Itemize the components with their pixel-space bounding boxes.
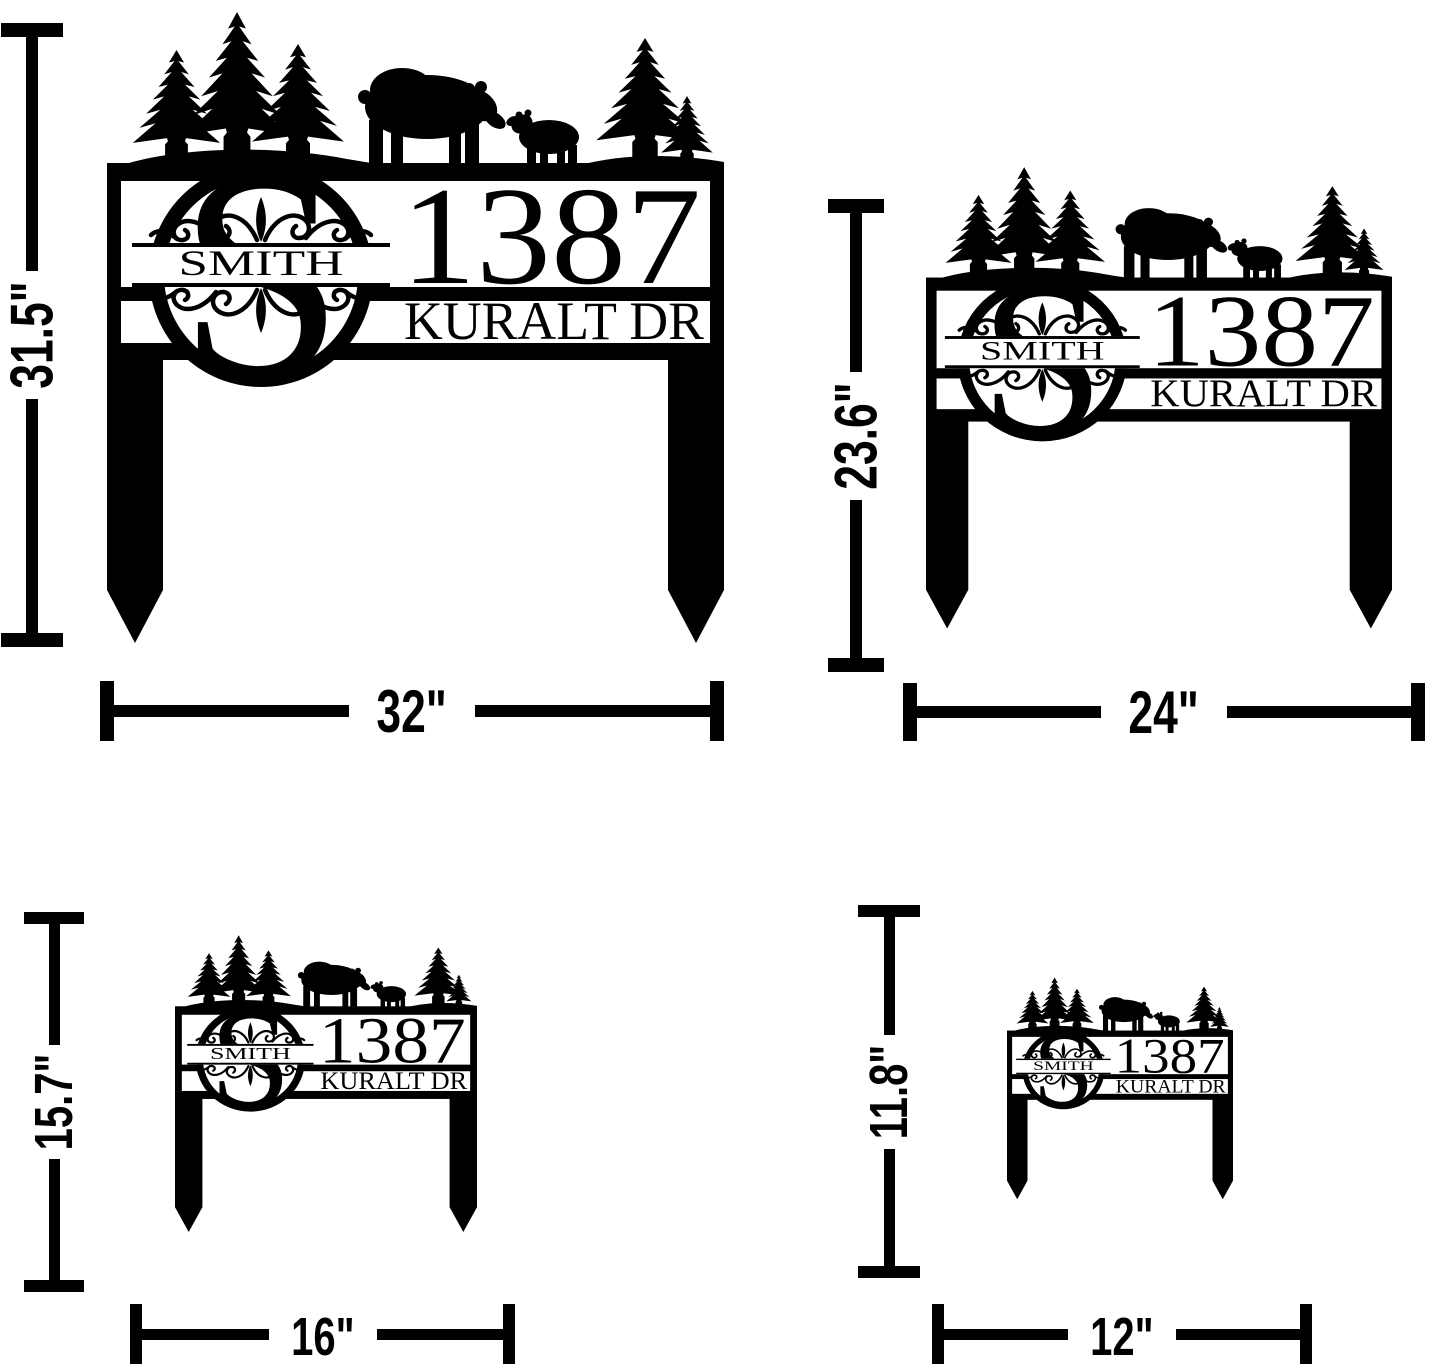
dimension-line bbox=[377, 1329, 504, 1340]
dimension-cap bbox=[1300, 1304, 1312, 1364]
width-dimension-xsmall: 12" bbox=[932, 1304, 1312, 1364]
width-label-small: 16" bbox=[269, 1300, 377, 1369]
sign-preview-12in bbox=[1007, 975, 1233, 1200]
dimension-line bbox=[917, 706, 1101, 718]
width-dimension-small: 16" bbox=[130, 1304, 515, 1364]
width-dimension-large: 32" bbox=[100, 681, 724, 741]
dimension-line bbox=[884, 917, 895, 1035]
dimension-cap bbox=[24, 912, 84, 924]
dimension-cap bbox=[1411, 683, 1425, 741]
dimension-line bbox=[944, 1329, 1068, 1340]
height-dimension-xsmall: 11.8" bbox=[858, 905, 920, 1278]
dimension-cap bbox=[858, 905, 920, 917]
width-label-large: 32" bbox=[349, 677, 475, 746]
dimension-line bbox=[142, 1329, 269, 1340]
dimension-line bbox=[850, 500, 862, 659]
dimension-line bbox=[26, 399, 38, 633]
dimension-cap bbox=[903, 683, 917, 741]
dimension-cap bbox=[130, 1304, 142, 1364]
width-label-xsmall: 12" bbox=[1068, 1300, 1176, 1369]
dimension-cap bbox=[100, 681, 114, 741]
height-dimension-medium: 23.6" bbox=[828, 199, 884, 672]
dimension-cap bbox=[1, 23, 63, 37]
dimension-cap bbox=[932, 1304, 944, 1364]
dimension-line bbox=[26, 37, 38, 271]
sign-preview-32in bbox=[107, 5, 724, 645]
dimension-line bbox=[49, 1159, 60, 1280]
dimension-line bbox=[49, 924, 60, 1045]
dimension-cap bbox=[858, 1266, 920, 1278]
dimension-cap bbox=[503, 1304, 515, 1364]
sign-preview-16in bbox=[175, 932, 477, 1233]
dimension-cap bbox=[710, 681, 724, 741]
height-dimension-large: 31.5" bbox=[1, 23, 63, 647]
sign-preview-24in bbox=[926, 162, 1392, 630]
width-dimension-medium: 24" bbox=[903, 683, 1425, 741]
width-label-medium: 24" bbox=[1101, 678, 1227, 747]
dimension-line bbox=[475, 705, 710, 717]
height-label-small: 15.7" bbox=[24, 1045, 84, 1159]
height-label-xsmall: 11.8" bbox=[858, 1035, 920, 1149]
dimension-line bbox=[114, 705, 349, 717]
dimension-cap bbox=[828, 199, 884, 213]
dimension-cap bbox=[24, 1280, 84, 1292]
height-label-medium: 23.6" bbox=[828, 372, 884, 500]
dimension-line bbox=[850, 213, 862, 372]
dimension-line bbox=[884, 1149, 895, 1267]
dimension-cap bbox=[828, 658, 884, 672]
dimension-cap bbox=[1, 633, 63, 647]
height-label-large: 31.5" bbox=[1, 271, 63, 399]
height-dimension-small: 15.7" bbox=[24, 912, 84, 1292]
size-chart: S SMITH 1387 KURALT DR 31.5" bbox=[0, 0, 1431, 1372]
dimension-line bbox=[1176, 1329, 1300, 1340]
dimension-line bbox=[1227, 706, 1411, 718]
